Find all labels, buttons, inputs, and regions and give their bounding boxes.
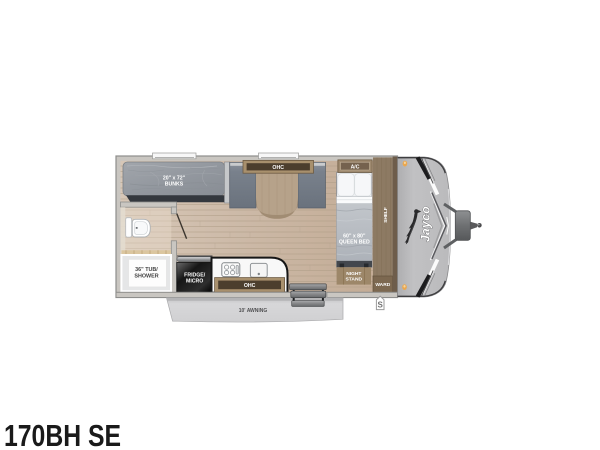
svg-text:A/C: A/C	[351, 165, 360, 171]
svg-text:SHOWER: SHOWER	[134, 274, 158, 280]
svg-text:FRIDGE/: FRIDGE/	[184, 272, 206, 278]
svg-text:OHC: OHC	[244, 283, 256, 289]
svg-text:BUNKS: BUNKS	[165, 182, 184, 188]
svg-text:10' AWNING: 10' AWNING	[239, 308, 268, 314]
svg-text:MICRO: MICRO	[186, 279, 203, 285]
svg-text:NIGHT: NIGHT	[346, 271, 361, 277]
svg-text:60" x 80": 60" x 80"	[343, 233, 366, 239]
svg-text:SHELF: SHELF	[383, 207, 388, 223]
svg-text:WARD: WARD	[375, 282, 390, 288]
svg-text:QUEEN BED: QUEEN BED	[339, 240, 370, 246]
svg-text:OHC: OHC	[272, 165, 284, 171]
svg-text:S: S	[378, 301, 384, 310]
svg-text:170BH SE: 170BH SE	[4, 418, 121, 450]
svg-text:36" TUB/: 36" TUB/	[135, 267, 158, 273]
svg-text:STAND: STAND	[346, 277, 363, 283]
